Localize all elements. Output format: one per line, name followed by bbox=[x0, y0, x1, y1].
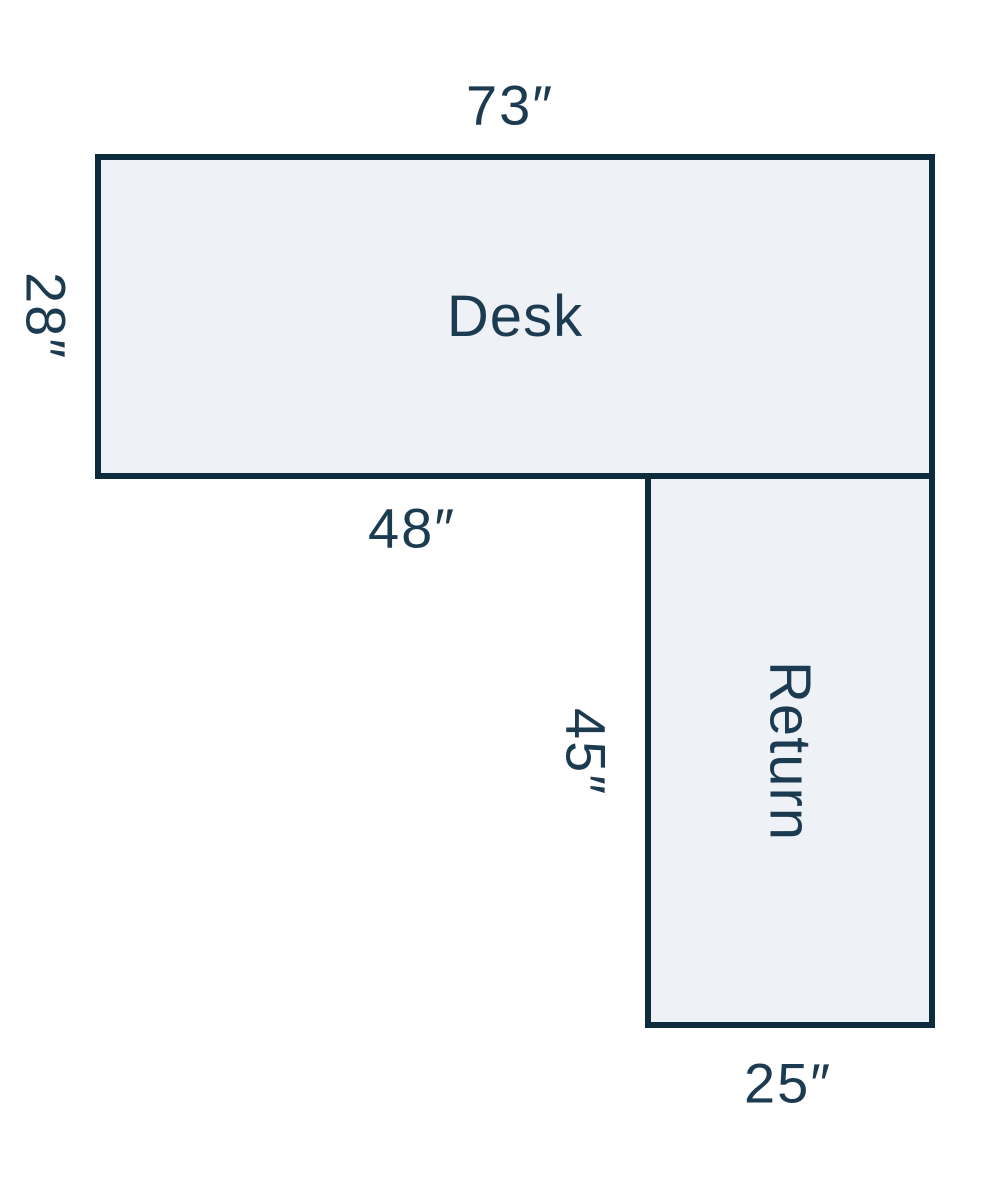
desk-bottom-segment-dimension: 48″ bbox=[368, 496, 456, 561]
desk-label: Desk bbox=[447, 283, 583, 350]
return-length-dimension: 45″ bbox=[554, 708, 619, 796]
desk-depth-dimension: 28″ bbox=[14, 272, 79, 360]
desk-shape: Desk bbox=[95, 154, 935, 479]
desk-width-dimension: 73″ bbox=[466, 73, 554, 138]
diagram-canvas: Desk Return 73″ 28″ 48″ 45″ 25″ bbox=[0, 0, 1000, 1200]
return-label: Return bbox=[757, 660, 824, 840]
return-width-dimension: 25″ bbox=[744, 1051, 832, 1116]
return-shape: Return bbox=[645, 473, 935, 1028]
